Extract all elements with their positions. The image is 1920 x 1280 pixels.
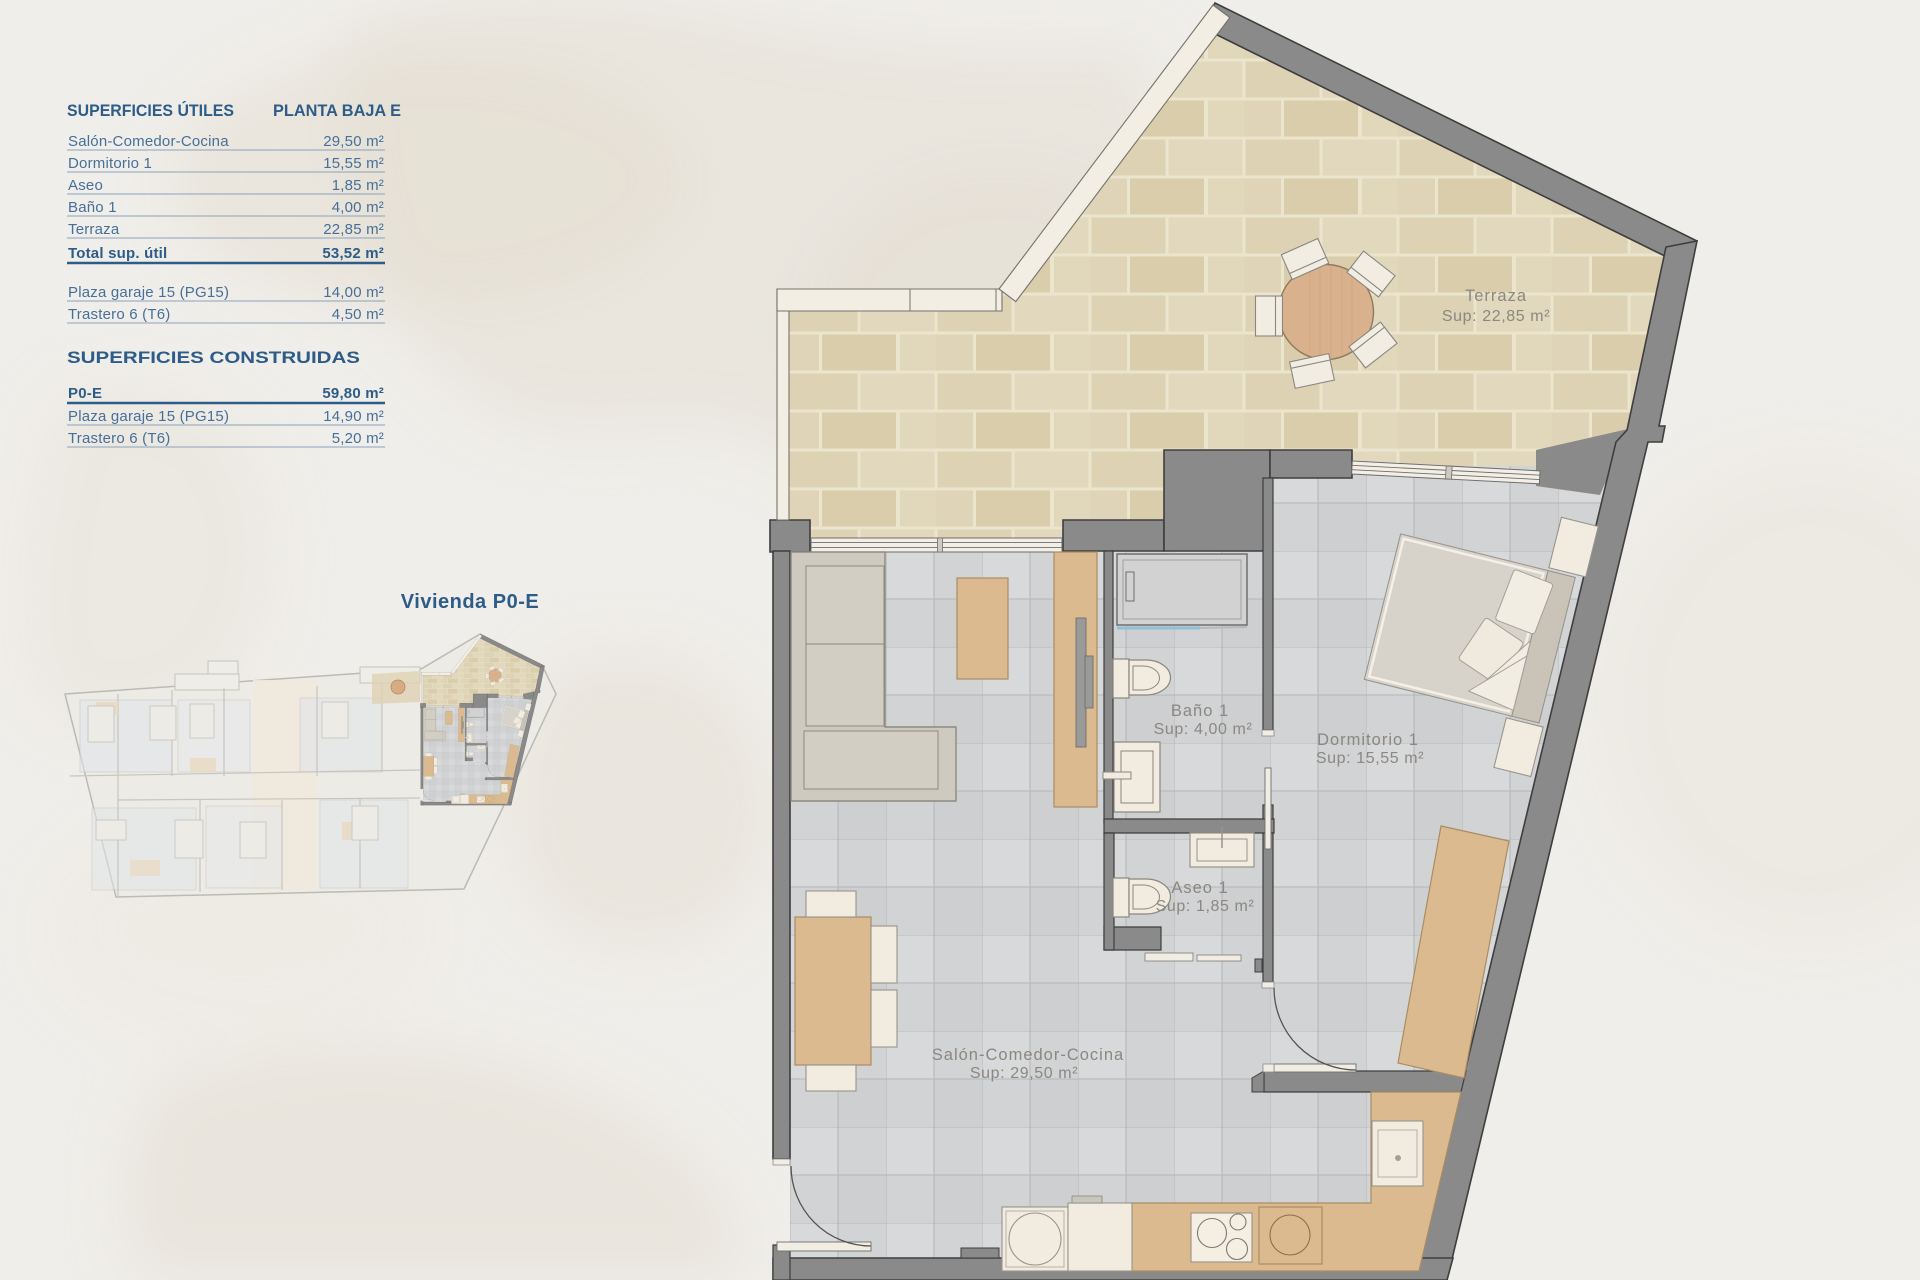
svg-text:Baño 1: Baño 1	[1171, 702, 1229, 720]
svg-text:Plaza garaje 15 (PG15): Plaza garaje 15 (PG15)	[68, 284, 229, 301]
svg-text:29,50 m²: 29,50 m²	[323, 133, 384, 150]
svg-text:14,90 m²: 14,90 m²	[323, 408, 384, 425]
svg-text:Plaza garaje 15 (PG15): Plaza garaje 15 (PG15)	[68, 408, 229, 425]
svg-text:Dormitorio 1: Dormitorio 1	[1317, 731, 1419, 749]
svg-text:Aseo 1: Aseo 1	[1171, 879, 1228, 897]
svg-text:SUPERFICIES ÚTILES: SUPERFICIES ÚTILES	[67, 101, 234, 120]
svg-text:4,00 m²: 4,00 m²	[332, 199, 384, 216]
svg-text:1,85 m²: 1,85 m²	[332, 177, 384, 194]
svg-text:Sup: 1,85 m²: Sup: 1,85 m²	[1156, 898, 1255, 915]
svg-text:Salón-Comedor-Cocina: Salón-Comedor-Cocina	[932, 1046, 1124, 1064]
svg-text:Total sup. útil: Total sup. útil	[68, 245, 167, 262]
svg-text:5,20 m²: 5,20 m²	[332, 430, 384, 447]
svg-text:15,55 m²: 15,55 m²	[323, 155, 384, 172]
svg-text:14,00 m²: 14,00 m²	[323, 284, 384, 301]
svg-text:Sup: 29,50 m²: Sup: 29,50 m²	[970, 1065, 1078, 1082]
svg-text:Sup: 4,00 m²: Sup: 4,00 m²	[1154, 721, 1253, 738]
svg-text:Dormitorio 1: Dormitorio 1	[68, 155, 152, 172]
svg-text:Baño 1: Baño 1	[68, 199, 117, 216]
svg-text:Sup: 22,85 m²: Sup: 22,85 m²	[1442, 308, 1550, 325]
svg-text:P0-E: P0-E	[68, 385, 102, 402]
svg-text:Sup: 15,55 m²: Sup: 15,55 m²	[1316, 750, 1424, 767]
svg-text:59,80 m²: 59,80 m²	[322, 385, 384, 402]
svg-text:53,52 m²: 53,52 m²	[322, 245, 384, 262]
svg-text:Aseo: Aseo	[68, 177, 103, 194]
svg-text:22,85 m²: 22,85 m²	[323, 221, 384, 238]
svg-text:Vivienda P0-E: Vivienda P0-E	[401, 591, 539, 613]
svg-text:SUPERFICIES CONSTRUIDAS: SUPERFICIES CONSTRUIDAS	[67, 348, 360, 367]
svg-text:Salón-Comedor-Cocina: Salón-Comedor-Cocina	[68, 133, 229, 150]
svg-text:Trastero 6 (T6): Trastero 6 (T6)	[68, 430, 170, 447]
svg-text:4,50 m²: 4,50 m²	[332, 306, 384, 323]
svg-text:PLANTA BAJA E: PLANTA BAJA E	[273, 101, 401, 120]
svg-text:Trastero 6 (T6): Trastero 6 (T6)	[68, 306, 170, 323]
svg-text:Terraza: Terraza	[1465, 287, 1527, 305]
svg-text:Terraza: Terraza	[68, 221, 120, 238]
